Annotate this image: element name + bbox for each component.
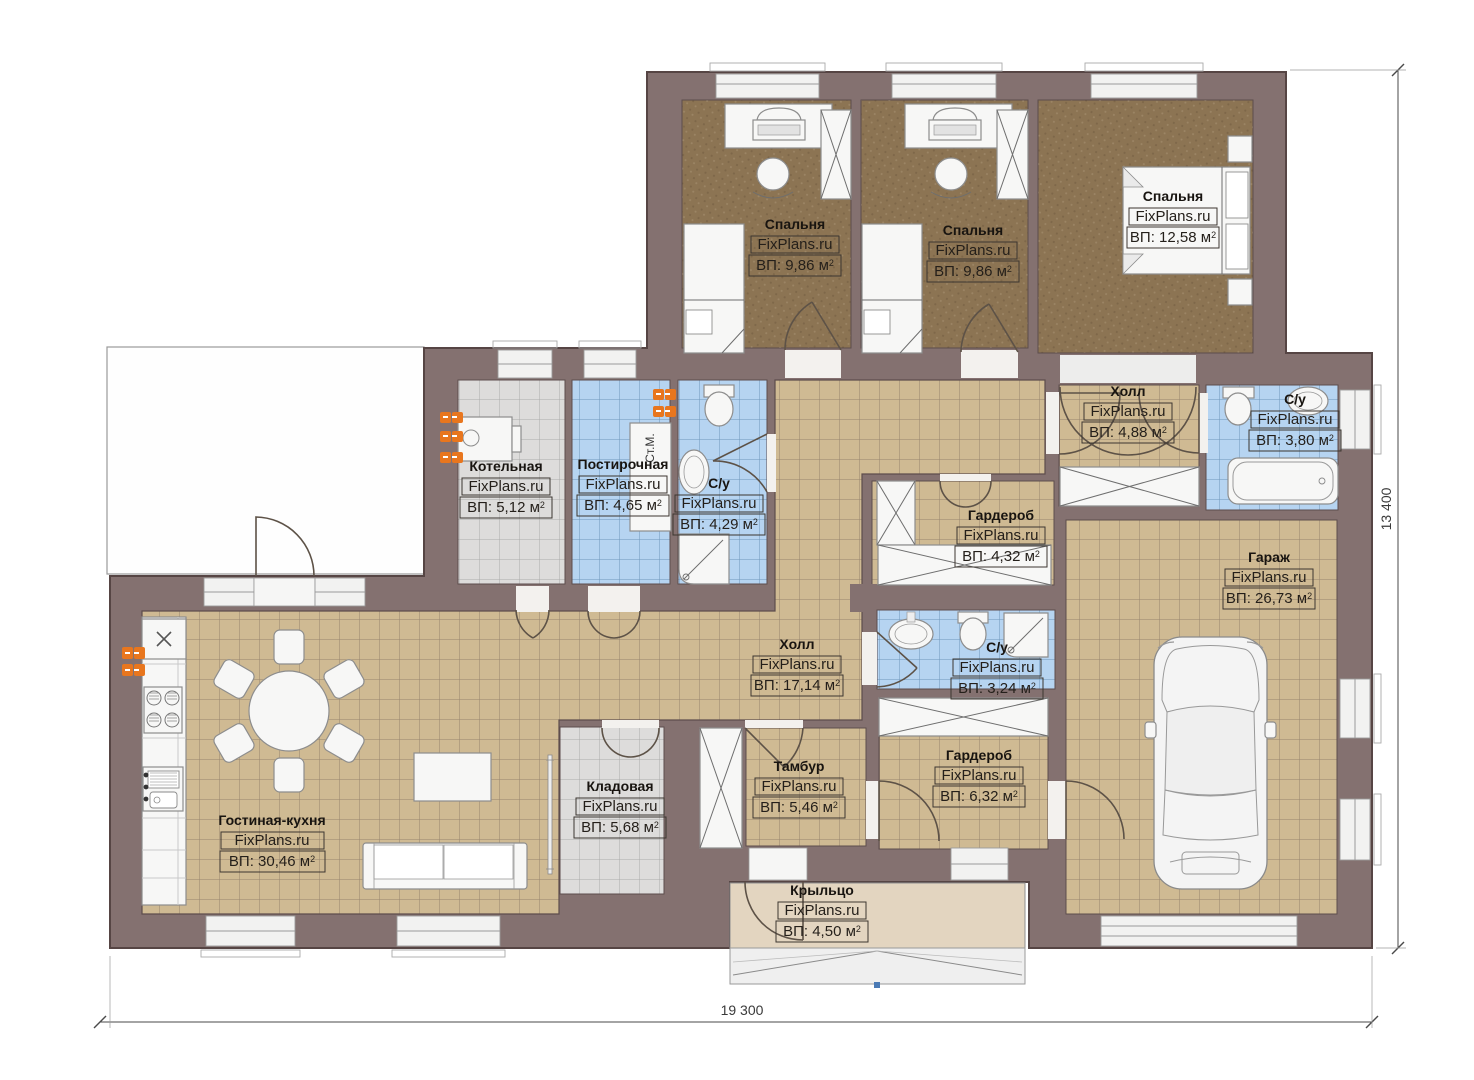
- svg-text:С/у: С/у: [1284, 391, 1306, 407]
- svg-text:Спальня: Спальня: [1143, 188, 1203, 204]
- svg-text:FixPlans.ru: FixPlans.ru: [468, 478, 543, 495]
- svg-text:FixPlans.ru: FixPlans.ru: [1231, 569, 1306, 586]
- svg-text:FixPlans.ru: FixPlans.ru: [959, 659, 1034, 676]
- svg-text:ВП: 4,29 м2: ВП: 4,29 м2: [680, 516, 758, 533]
- svg-text:ВП: 3,80 м2: ВП: 3,80 м2: [1256, 432, 1334, 449]
- svg-text:FixPlans.ru: FixPlans.ru: [759, 656, 834, 673]
- svg-text:ВП: 6,32 м2: ВП: 6,32 м2: [940, 788, 1018, 805]
- svg-text:ВП: 26,73 м2: ВП: 26,73 м2: [1226, 590, 1312, 607]
- svg-text:13 400: 13 400: [1378, 487, 1394, 530]
- svg-text:Спальня: Спальня: [765, 216, 825, 232]
- svg-text:Крыльцо: Крыльцо: [790, 882, 854, 898]
- svg-text:ВП: 4,88 м2: ВП: 4,88 м2: [1089, 424, 1167, 441]
- svg-text:Гардероб: Гардероб: [968, 507, 1035, 523]
- svg-text:ВП: 17,14 м2: ВП: 17,14 м2: [754, 677, 840, 694]
- svg-text:FixPlans.ru: FixPlans.ru: [963, 527, 1038, 544]
- svg-text:ВП: 12,58 м2: ВП: 12,58 м2: [1130, 229, 1216, 246]
- svg-text:Холл: Холл: [779, 636, 814, 652]
- svg-text:FixPlans.ru: FixPlans.ru: [585, 476, 660, 493]
- svg-text:FixPlans.ru: FixPlans.ru: [1135, 208, 1210, 225]
- svg-text:FixPlans.ru: FixPlans.ru: [784, 902, 859, 919]
- svg-text:FixPlans.ru: FixPlans.ru: [935, 242, 1010, 259]
- svg-text:Кладовая: Кладовая: [586, 778, 653, 794]
- svg-text:FixPlans.ru: FixPlans.ru: [234, 832, 309, 849]
- svg-text:Постирочная: Постирочная: [578, 456, 669, 472]
- svg-text:ВП: 4,65 м2: ВП: 4,65 м2: [584, 497, 662, 514]
- svg-text:ВП: 5,12 м2: ВП: 5,12 м2: [467, 499, 545, 516]
- svg-text:ВП: 30,46 м2: ВП: 30,46 м2: [229, 853, 315, 870]
- svg-text:С/у: С/у: [986, 639, 1008, 655]
- svg-text:Гардероб: Гардероб: [946, 747, 1013, 763]
- svg-text:ВП: 5,46 м2: ВП: 5,46 м2: [760, 799, 838, 816]
- svg-text:19 300: 19 300: [721, 1002, 764, 1018]
- svg-text:ВП: 4,50 м2: ВП: 4,50 м2: [783, 923, 861, 940]
- svg-text:Гараж: Гараж: [1248, 549, 1291, 565]
- svg-text:FixPlans.ru: FixPlans.ru: [1090, 403, 1165, 420]
- svg-text:ВП: 9,86 м2: ВП: 9,86 м2: [756, 257, 834, 274]
- svg-text:FixPlans.ru: FixPlans.ru: [761, 778, 836, 795]
- svg-text:FixPlans.ru: FixPlans.ru: [757, 236, 832, 253]
- svg-text:ВП: 5,68 м2: ВП: 5,68 м2: [581, 819, 659, 836]
- svg-text:ВП: 3,24 м2: ВП: 3,24 м2: [958, 680, 1036, 697]
- svg-text:ВП: 9,86 м2: ВП: 9,86 м2: [934, 263, 1012, 280]
- svg-text:Тамбур: Тамбур: [774, 758, 825, 774]
- svg-text:FixPlans.ru: FixPlans.ru: [941, 767, 1016, 784]
- svg-text:FixPlans.ru: FixPlans.ru: [681, 495, 756, 512]
- svg-text:ВП: 4,32 м2: ВП: 4,32 м2: [962, 548, 1040, 565]
- svg-text:С/у: С/у: [708, 475, 730, 491]
- svg-text:Холл: Холл: [1110, 383, 1145, 399]
- svg-text:Гостиная-кухня: Гостиная-кухня: [218, 812, 325, 828]
- svg-text:Котельная: Котельная: [469, 458, 542, 474]
- svg-text:FixPlans.ru: FixPlans.ru: [582, 798, 657, 815]
- svg-text:Спальня: Спальня: [943, 222, 1003, 238]
- svg-text:FixPlans.ru: FixPlans.ru: [1257, 411, 1332, 428]
